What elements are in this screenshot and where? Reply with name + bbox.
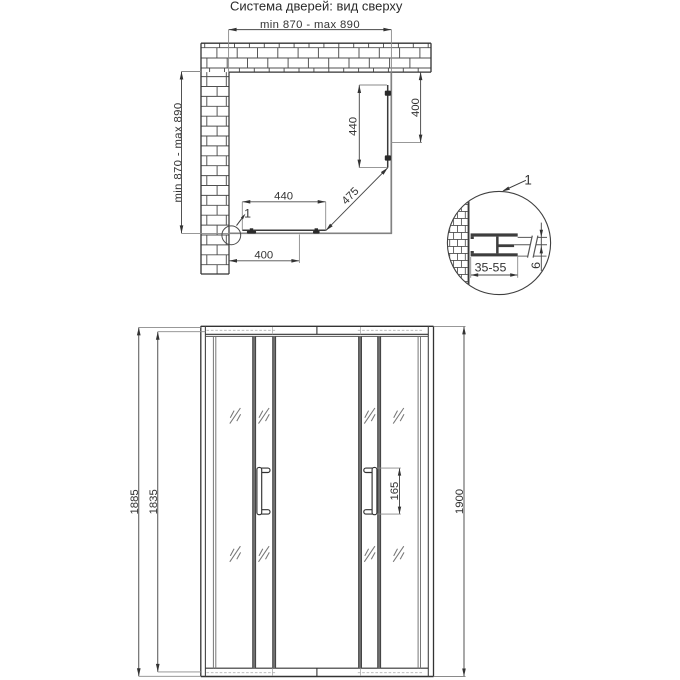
svg-text:440: 440 bbox=[348, 117, 360, 136]
svg-text:1: 1 bbox=[524, 173, 531, 188]
svg-text:1: 1 bbox=[244, 206, 251, 220]
svg-text:min 870 - max 890: min 870 - max 890 bbox=[172, 102, 184, 202]
svg-text:400: 400 bbox=[254, 249, 273, 261]
svg-text:35-55: 35-55 bbox=[475, 261, 507, 275]
svg-text:440: 440 bbox=[274, 190, 293, 202]
svg-text:1835: 1835 bbox=[148, 489, 160, 514]
svg-text:400: 400 bbox=[410, 98, 422, 117]
svg-text:6: 6 bbox=[529, 262, 543, 269]
svg-text:Система дверей: вид сверху: Система дверей: вид сверху bbox=[230, 0, 403, 14]
svg-text:1885: 1885 bbox=[129, 489, 141, 514]
